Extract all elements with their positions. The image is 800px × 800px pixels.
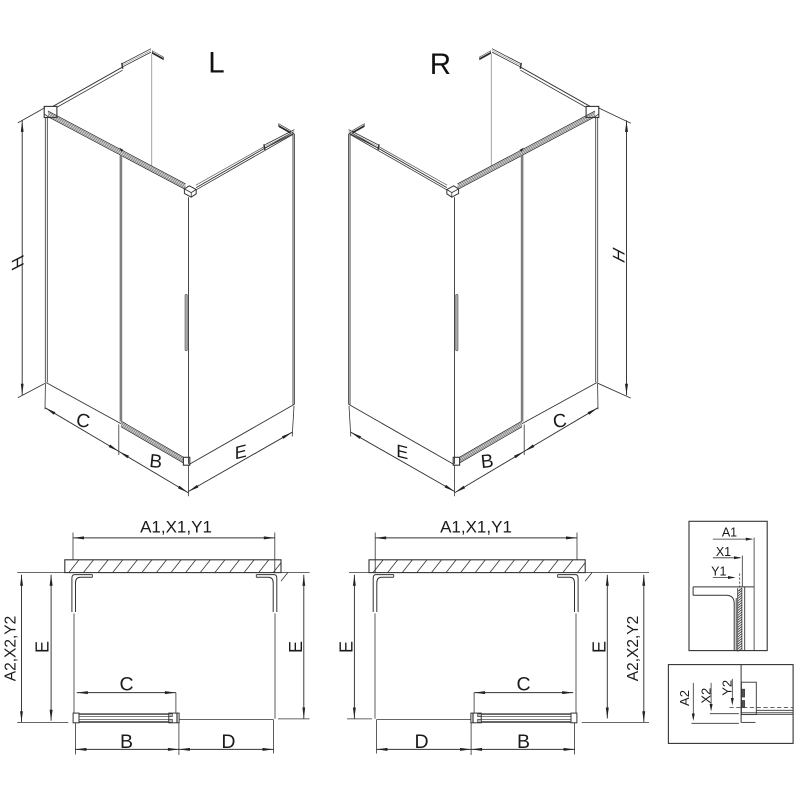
- svg-text:X1: X1: [716, 545, 731, 559]
- svg-text:A1,X1,Y1: A1,X1,Y1: [140, 518, 212, 537]
- svg-text:D: D: [415, 731, 429, 753]
- svg-text:B: B: [120, 731, 133, 753]
- svg-text:A1,X1,Y1: A1,X1,Y1: [440, 518, 512, 537]
- svg-text:E: E: [396, 440, 408, 464]
- svg-text:E: E: [337, 641, 357, 653]
- svg-text:A2,X2,Y2: A2,X2,Y2: [625, 616, 642, 682]
- svg-text:Y1: Y1: [711, 564, 726, 578]
- svg-text:B: B: [517, 731, 530, 753]
- svg-text:E: E: [32, 641, 52, 653]
- svg-text:C: C: [516, 674, 530, 696]
- svg-text:E: E: [590, 641, 610, 653]
- svg-text:C: C: [75, 410, 92, 433]
- svg-text:A2,X2,Y2: A2,X2,Y2: [3, 616, 20, 682]
- svg-text:E: E: [235, 440, 247, 464]
- svg-text:L: L: [208, 47, 224, 80]
- svg-text:E: E: [286, 641, 306, 653]
- svg-text:R: R: [430, 48, 451, 81]
- svg-text:C: C: [552, 410, 569, 433]
- svg-text:B: B: [148, 451, 163, 473]
- svg-text:C: C: [119, 674, 133, 696]
- svg-text:D: D: [221, 731, 235, 753]
- svg-text:B: B: [480, 451, 495, 473]
- svg-text:A1: A1: [722, 526, 737, 540]
- svg-text:A2: A2: [677, 690, 692, 706]
